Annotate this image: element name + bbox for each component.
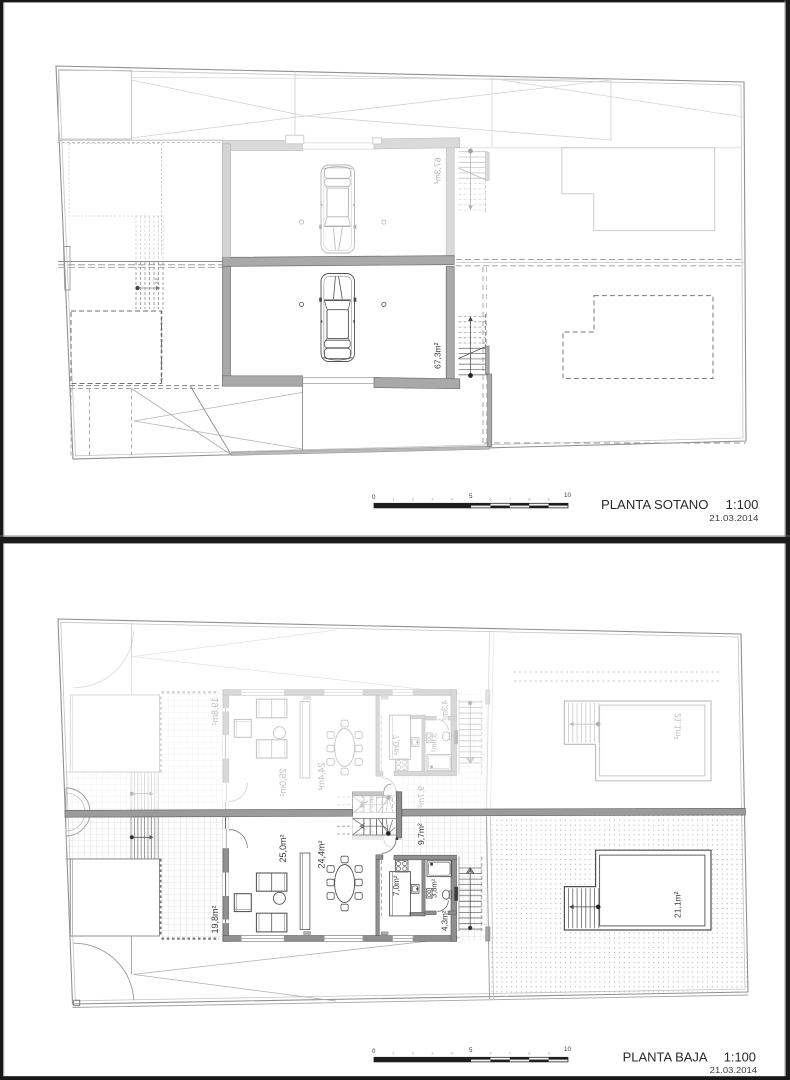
- svg-text:PLANTA SOTANO: PLANTA SOTANO: [601, 497, 709, 512]
- svg-text:5: 5: [469, 1047, 473, 1054]
- svg-text:5: 5: [469, 493, 473, 500]
- svg-text:19,8m²: 19,8m²: [210, 905, 220, 933]
- svg-text:21,1m²: 21,1m²: [673, 891, 683, 918]
- svg-text:4,3m²: 4,3m²: [441, 910, 450, 931]
- svg-text:21.03.2014: 21.03.2014: [710, 1065, 758, 1075]
- svg-text:9,7m²: 9,7m²: [416, 823, 426, 845]
- svg-text:3,6: 3,6: [154, 277, 159, 284]
- svg-text:1:100: 1:100: [726, 497, 759, 512]
- svg-text:67,3m²: 67,3m²: [433, 342, 443, 369]
- svg-text:24,4m²: 24,4m²: [317, 840, 327, 868]
- svg-text:PLANTA BAJA: PLANTA BAJA: [623, 1049, 708, 1064]
- svg-text:10: 10: [564, 1046, 571, 1053]
- svg-text:25,0m²: 25,0m²: [278, 834, 288, 862]
- svg-text:7,0m²: 7,0m²: [392, 875, 401, 896]
- svg-text:0: 0: [372, 494, 376, 501]
- svg-text:10: 10: [564, 492, 571, 499]
- svg-text:1:100: 1:100: [724, 1049, 756, 1064]
- svg-text:0: 0: [372, 1048, 376, 1055]
- svg-text:21.03.2014: 21.03.2014: [709, 513, 759, 523]
- svg-text:3,8m²: 3,8m²: [430, 878, 439, 898]
